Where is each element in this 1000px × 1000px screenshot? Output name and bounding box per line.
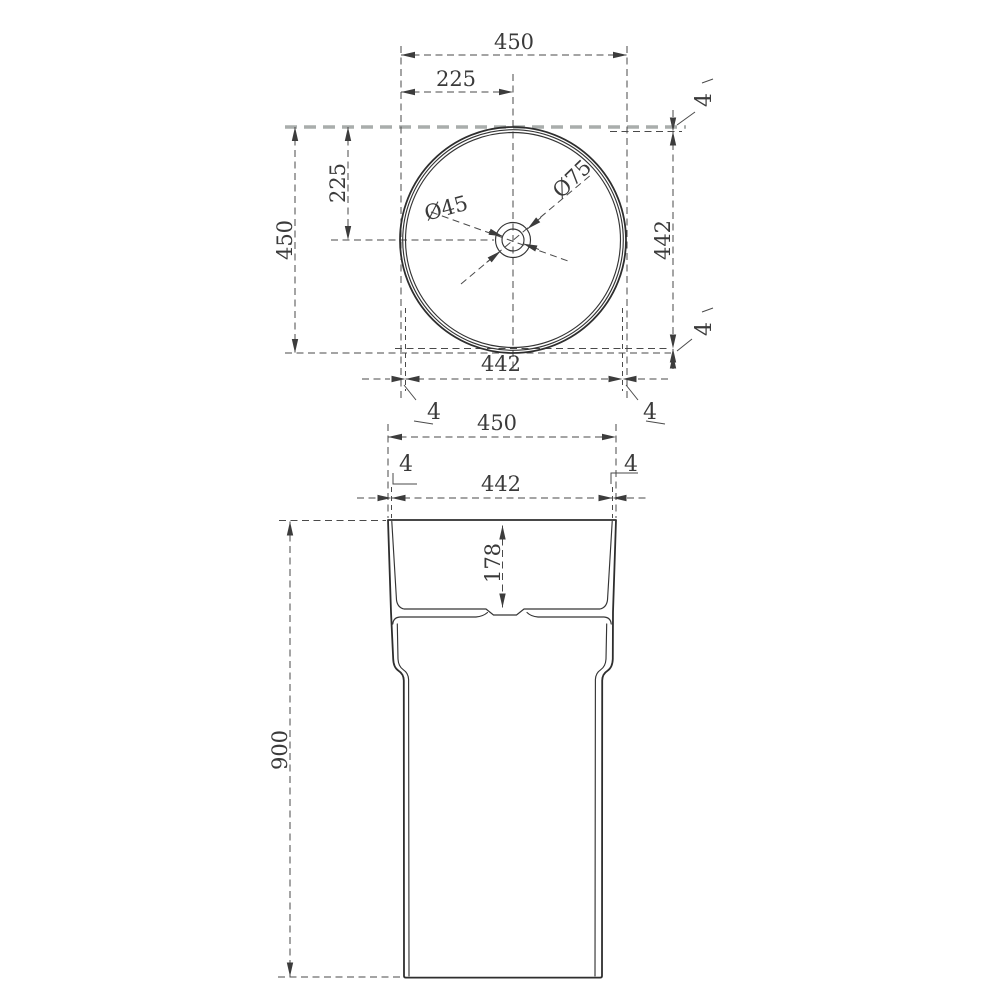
rim-gap-br-leader (677, 339, 692, 351)
dim-wall-right: 4 (611, 452, 638, 484)
dim-rim-gap-bottom-right-leader: 4 (626, 385, 665, 425)
dim-overall-height-label: 900 (268, 730, 292, 770)
dia75-arrow-upper (528, 218, 542, 229)
rim-gap-tr-label: 4 (692, 93, 717, 107)
dim-rim-gap-bottom-left-leader: 4 (404, 385, 441, 425)
dia75-arrow-lower (487, 251, 501, 262)
dim-wall-left: 4 (393, 452, 417, 484)
dia45-arrow-right (523, 244, 539, 250)
rim-gap-br2-label: 4 (643, 400, 657, 425)
drain-outer-dia-label: Ø75 (548, 155, 596, 203)
dim-left-overall-height-label: 450 (273, 220, 297, 260)
front-view-dimensions-top: 450 4 4 442 (357, 411, 649, 518)
front-view: 178 900 (268, 520, 616, 978)
shell-bottom-edge-right (527, 613, 611, 625)
dim-front-overall-width-label: 450 (477, 411, 517, 435)
drawing-canvas: Ø45 Ø75 450 225 450 225 442 4 4 (0, 0, 1000, 1000)
dim-front-inner-width-label: 442 (481, 472, 521, 496)
rim-gap-bl-leader (404, 385, 416, 400)
dim-bottom-inner-width-label: 442 (481, 352, 521, 376)
dim-left-half-height-label: 225 (326, 163, 350, 203)
dim-top-half-width-label: 225 (436, 67, 476, 91)
basin-technical-drawing: Ø45 Ø75 450 225 450 225 442 4 4 (0, 0, 1000, 1000)
rim-gap-tr-leader (677, 112, 695, 125)
shell-bottom-edge-left (393, 613, 488, 625)
dim-rim-gap-top-right: 4 (677, 79, 717, 125)
column-inner-wall-right (595, 624, 607, 976)
dim-top-overall-width-label: 450 (494, 30, 534, 54)
dim-right-inner-height-label: 442 (651, 220, 675, 260)
drain-axis-45 (431, 212, 568, 261)
top-view: Ø45 Ø75 450 225 450 225 442 4 4 (273, 30, 717, 425)
rim-gap-br2-leader (626, 385, 638, 400)
rim-gap-tr-tick (702, 79, 713, 83)
wall-right-label: 4 (624, 452, 638, 477)
rim-gap-br-tick (702, 308, 713, 312)
wall-left-label: 4 (399, 452, 413, 477)
rim-gap-bl-label: 4 (427, 400, 441, 425)
drain-inner-dia-label: Ø45 (422, 191, 471, 226)
dim-rim-gap-bottom-right: 4 (673, 308, 717, 369)
dim-basin-depth-label: 178 (481, 543, 505, 583)
rim-gap-br-label: 4 (692, 322, 717, 336)
